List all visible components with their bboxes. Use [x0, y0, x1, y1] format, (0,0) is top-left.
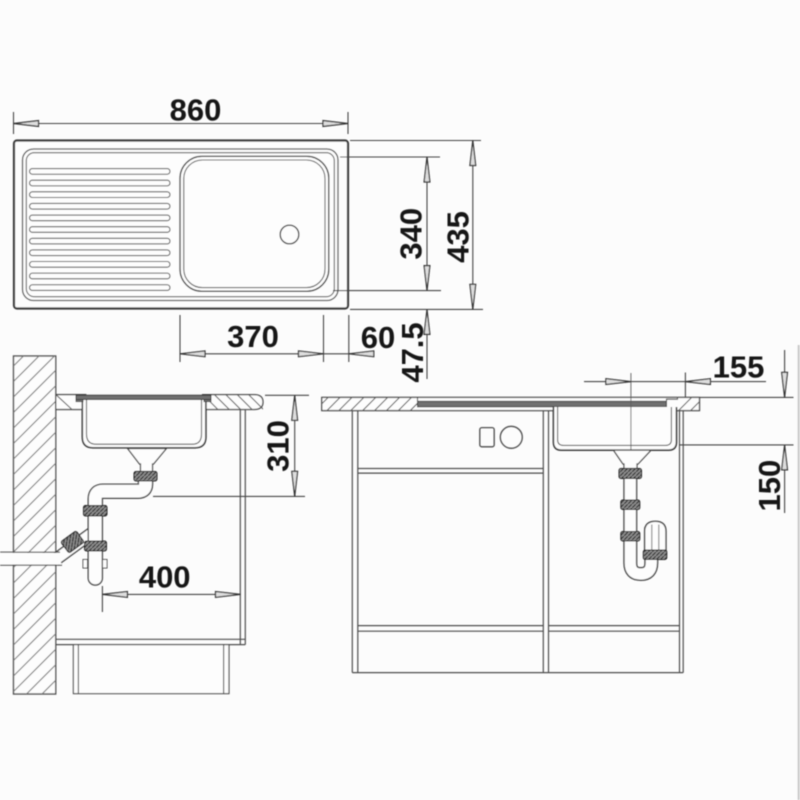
svg-text:310: 310 — [261, 420, 296, 472]
svg-text:435: 435 — [440, 211, 475, 263]
svg-text:400: 400 — [139, 560, 191, 595]
svg-text:155: 155 — [713, 350, 765, 385]
svg-text:860: 860 — [170, 93, 222, 128]
svg-text:340: 340 — [394, 208, 429, 260]
svg-text:60: 60 — [361, 320, 395, 355]
svg-text:370: 370 — [227, 319, 279, 354]
